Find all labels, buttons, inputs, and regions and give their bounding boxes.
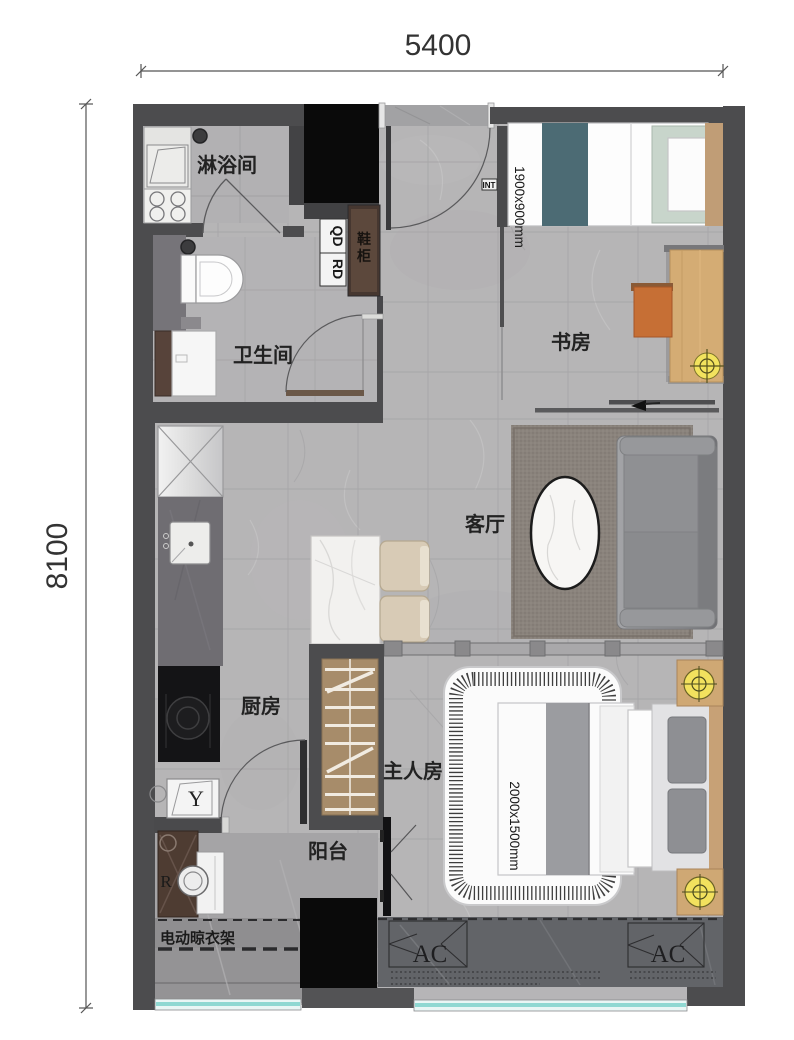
svg-text:Y: Y xyxy=(188,786,204,811)
svg-text:QD: QD xyxy=(330,226,346,247)
svg-text:厨房: 厨房 xyxy=(241,694,281,718)
svg-text:AC: AC xyxy=(413,941,448,968)
svg-text:客厅: 客厅 xyxy=(464,512,505,536)
svg-text:电动晾衣架: 电动晾衣架 xyxy=(160,929,235,947)
svg-text:卫生间: 卫生间 xyxy=(233,344,293,367)
svg-text:2000x1500mm: 2000x1500mm xyxy=(507,781,522,870)
svg-text:柜: 柜 xyxy=(357,248,371,264)
svg-text:RD: RD xyxy=(330,259,346,279)
svg-text:1900x900mm: 1900x900mm xyxy=(512,166,527,248)
svg-text:主人房: 主人房 xyxy=(383,759,443,783)
svg-text:书房: 书房 xyxy=(551,330,591,354)
svg-text:AC: AC xyxy=(651,941,686,968)
svg-text:8100: 8100 xyxy=(41,523,74,590)
svg-text:淋浴间: 淋浴间 xyxy=(197,153,257,177)
svg-text:INT: INT xyxy=(483,181,496,190)
svg-text:R: R xyxy=(160,872,172,891)
svg-text:鞋: 鞋 xyxy=(357,231,371,247)
svg-text:阳台: 阳台 xyxy=(308,839,348,863)
svg-text:5400: 5400 xyxy=(405,29,472,62)
